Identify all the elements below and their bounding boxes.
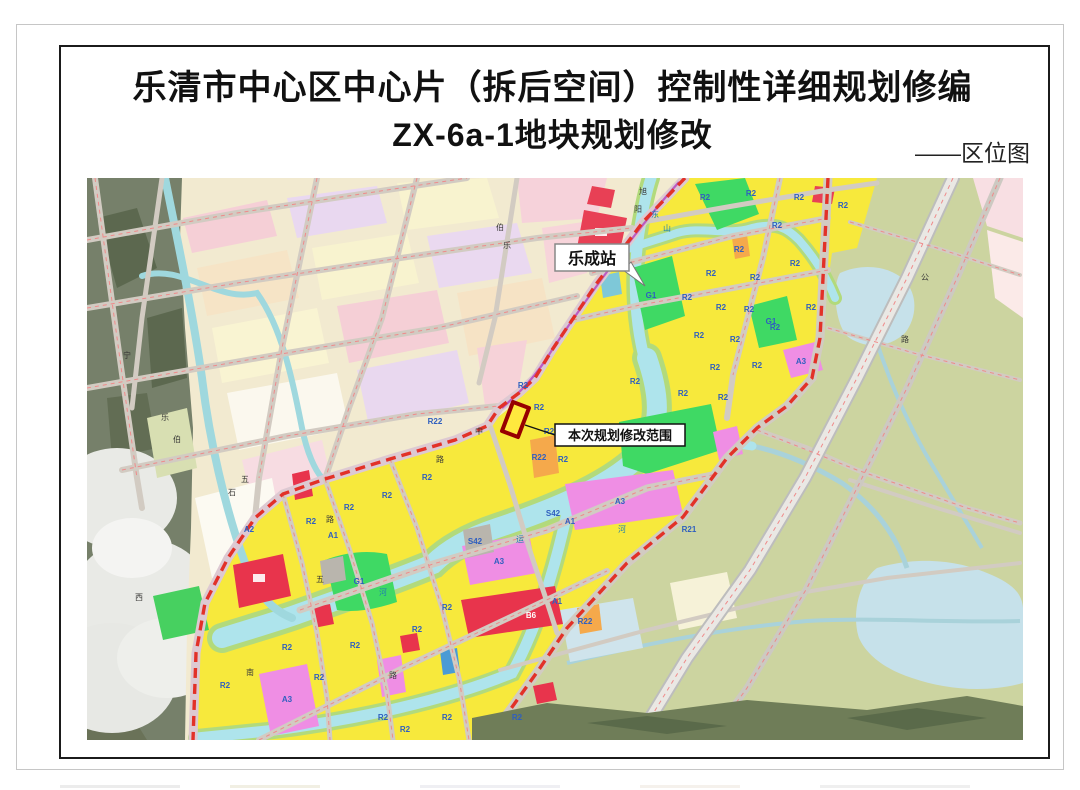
map-label: R2: [382, 491, 393, 500]
station-callout-label: 乐成站: [568, 249, 616, 268]
map-label: R2: [750, 273, 761, 282]
map-label: R2: [710, 363, 721, 372]
map-label: 西: [135, 593, 143, 602]
map-label: R2: [314, 673, 325, 682]
map-label: R2: [282, 643, 293, 652]
map-label: R22: [578, 617, 593, 626]
map-label: R2: [716, 303, 727, 312]
map-label: R2: [794, 193, 805, 202]
map-label: 乐: [161, 412, 169, 422]
map-label: R22: [428, 417, 443, 426]
map-label: R2: [518, 381, 529, 390]
map-label: 旭: [639, 186, 647, 196]
map-label: R2: [220, 681, 231, 690]
map-label: R2: [734, 245, 745, 254]
map-label: R2: [838, 201, 849, 210]
map-svg: R2R2R2R2R2R2R2R2R2R2R2R2R2R2R2R2R2R2R2R2…: [87, 178, 1023, 740]
map-label: R2: [422, 473, 433, 482]
map-label: S42: [546, 509, 561, 518]
map-label: A1: [552, 597, 563, 606]
map-label: R2: [746, 189, 757, 198]
map-label: 东: [651, 209, 659, 219]
map-label: R2: [378, 713, 389, 722]
page-title-line1: 乐清市中心区中心片（拆后空间）控制性详细规划修编: [60, 60, 1045, 109]
map-label: S42: [468, 537, 483, 546]
map-label: 路: [326, 514, 334, 524]
map-label: R2: [350, 641, 361, 650]
map-label: R2: [806, 303, 817, 312]
map-label: R2: [344, 503, 355, 512]
map-label: 路: [389, 670, 397, 680]
map-label: R2: [718, 393, 729, 402]
bottom-edge-artifact: [0, 785, 1080, 790]
map-label: 伯: [173, 434, 181, 444]
map-label: G1: [766, 317, 777, 326]
map-label: A1: [328, 531, 339, 540]
map-label: 河: [379, 587, 387, 597]
location-map: R2R2R2R2R2R2R2R2R2R2R2R2R2R2R2R2R2R2R2R2…: [87, 178, 1023, 740]
map-label: R2: [558, 455, 569, 464]
map-label: R2: [706, 269, 717, 278]
map-label: 山: [663, 223, 671, 233]
map-label: 伯: [496, 222, 504, 232]
map-label: R2: [442, 603, 453, 612]
map-label: 宁: [123, 350, 131, 360]
map-label: 五: [241, 475, 249, 484]
map-label: A3: [796, 357, 807, 366]
map-label: R2: [534, 403, 545, 412]
map-label: R2: [744, 305, 755, 314]
map-label: 河: [618, 524, 626, 534]
map-label: 公: [921, 273, 929, 282]
map-label: 南: [246, 667, 254, 677]
map-label: R21: [682, 525, 697, 534]
map-label: R2: [442, 713, 453, 722]
map-label: A1: [565, 517, 576, 526]
map-label: R2: [752, 361, 763, 370]
map-label: 中: [475, 426, 483, 436]
map-label: A3: [282, 695, 293, 704]
map-label: R2: [700, 193, 711, 202]
map-label: 石: [228, 488, 236, 497]
map-label: 运: [516, 535, 524, 544]
map-label: R2: [682, 293, 693, 302]
map-label: R22: [532, 453, 547, 462]
map-label: R2: [790, 259, 801, 268]
corner-label: ——区位图: [880, 134, 1030, 168]
map-label: G1: [354, 577, 365, 586]
map-label: 乐: [503, 240, 511, 250]
map-label: R2: [730, 335, 741, 344]
map-label: 五: [316, 575, 324, 584]
map-label: A2: [244, 525, 255, 534]
map-label: A3: [615, 497, 626, 506]
map-label: R2: [772, 221, 783, 230]
map-label: A3: [494, 557, 505, 566]
map-label: R2: [400, 725, 411, 734]
map-label: B6: [526, 611, 537, 620]
map-label: 路: [901, 334, 909, 344]
map-label: R2: [694, 331, 705, 340]
map-label: R2: [678, 389, 689, 398]
map-label: 路: [436, 454, 444, 464]
map-label: R2: [306, 517, 317, 526]
map-label: R2: [512, 713, 523, 722]
map-label: R2: [630, 377, 641, 386]
map-label: G1: [646, 291, 657, 300]
map-label: R2: [412, 625, 423, 634]
scope-callout-label: 本次规划修改范围: [568, 428, 672, 443]
map-label: 阳: [634, 205, 642, 214]
